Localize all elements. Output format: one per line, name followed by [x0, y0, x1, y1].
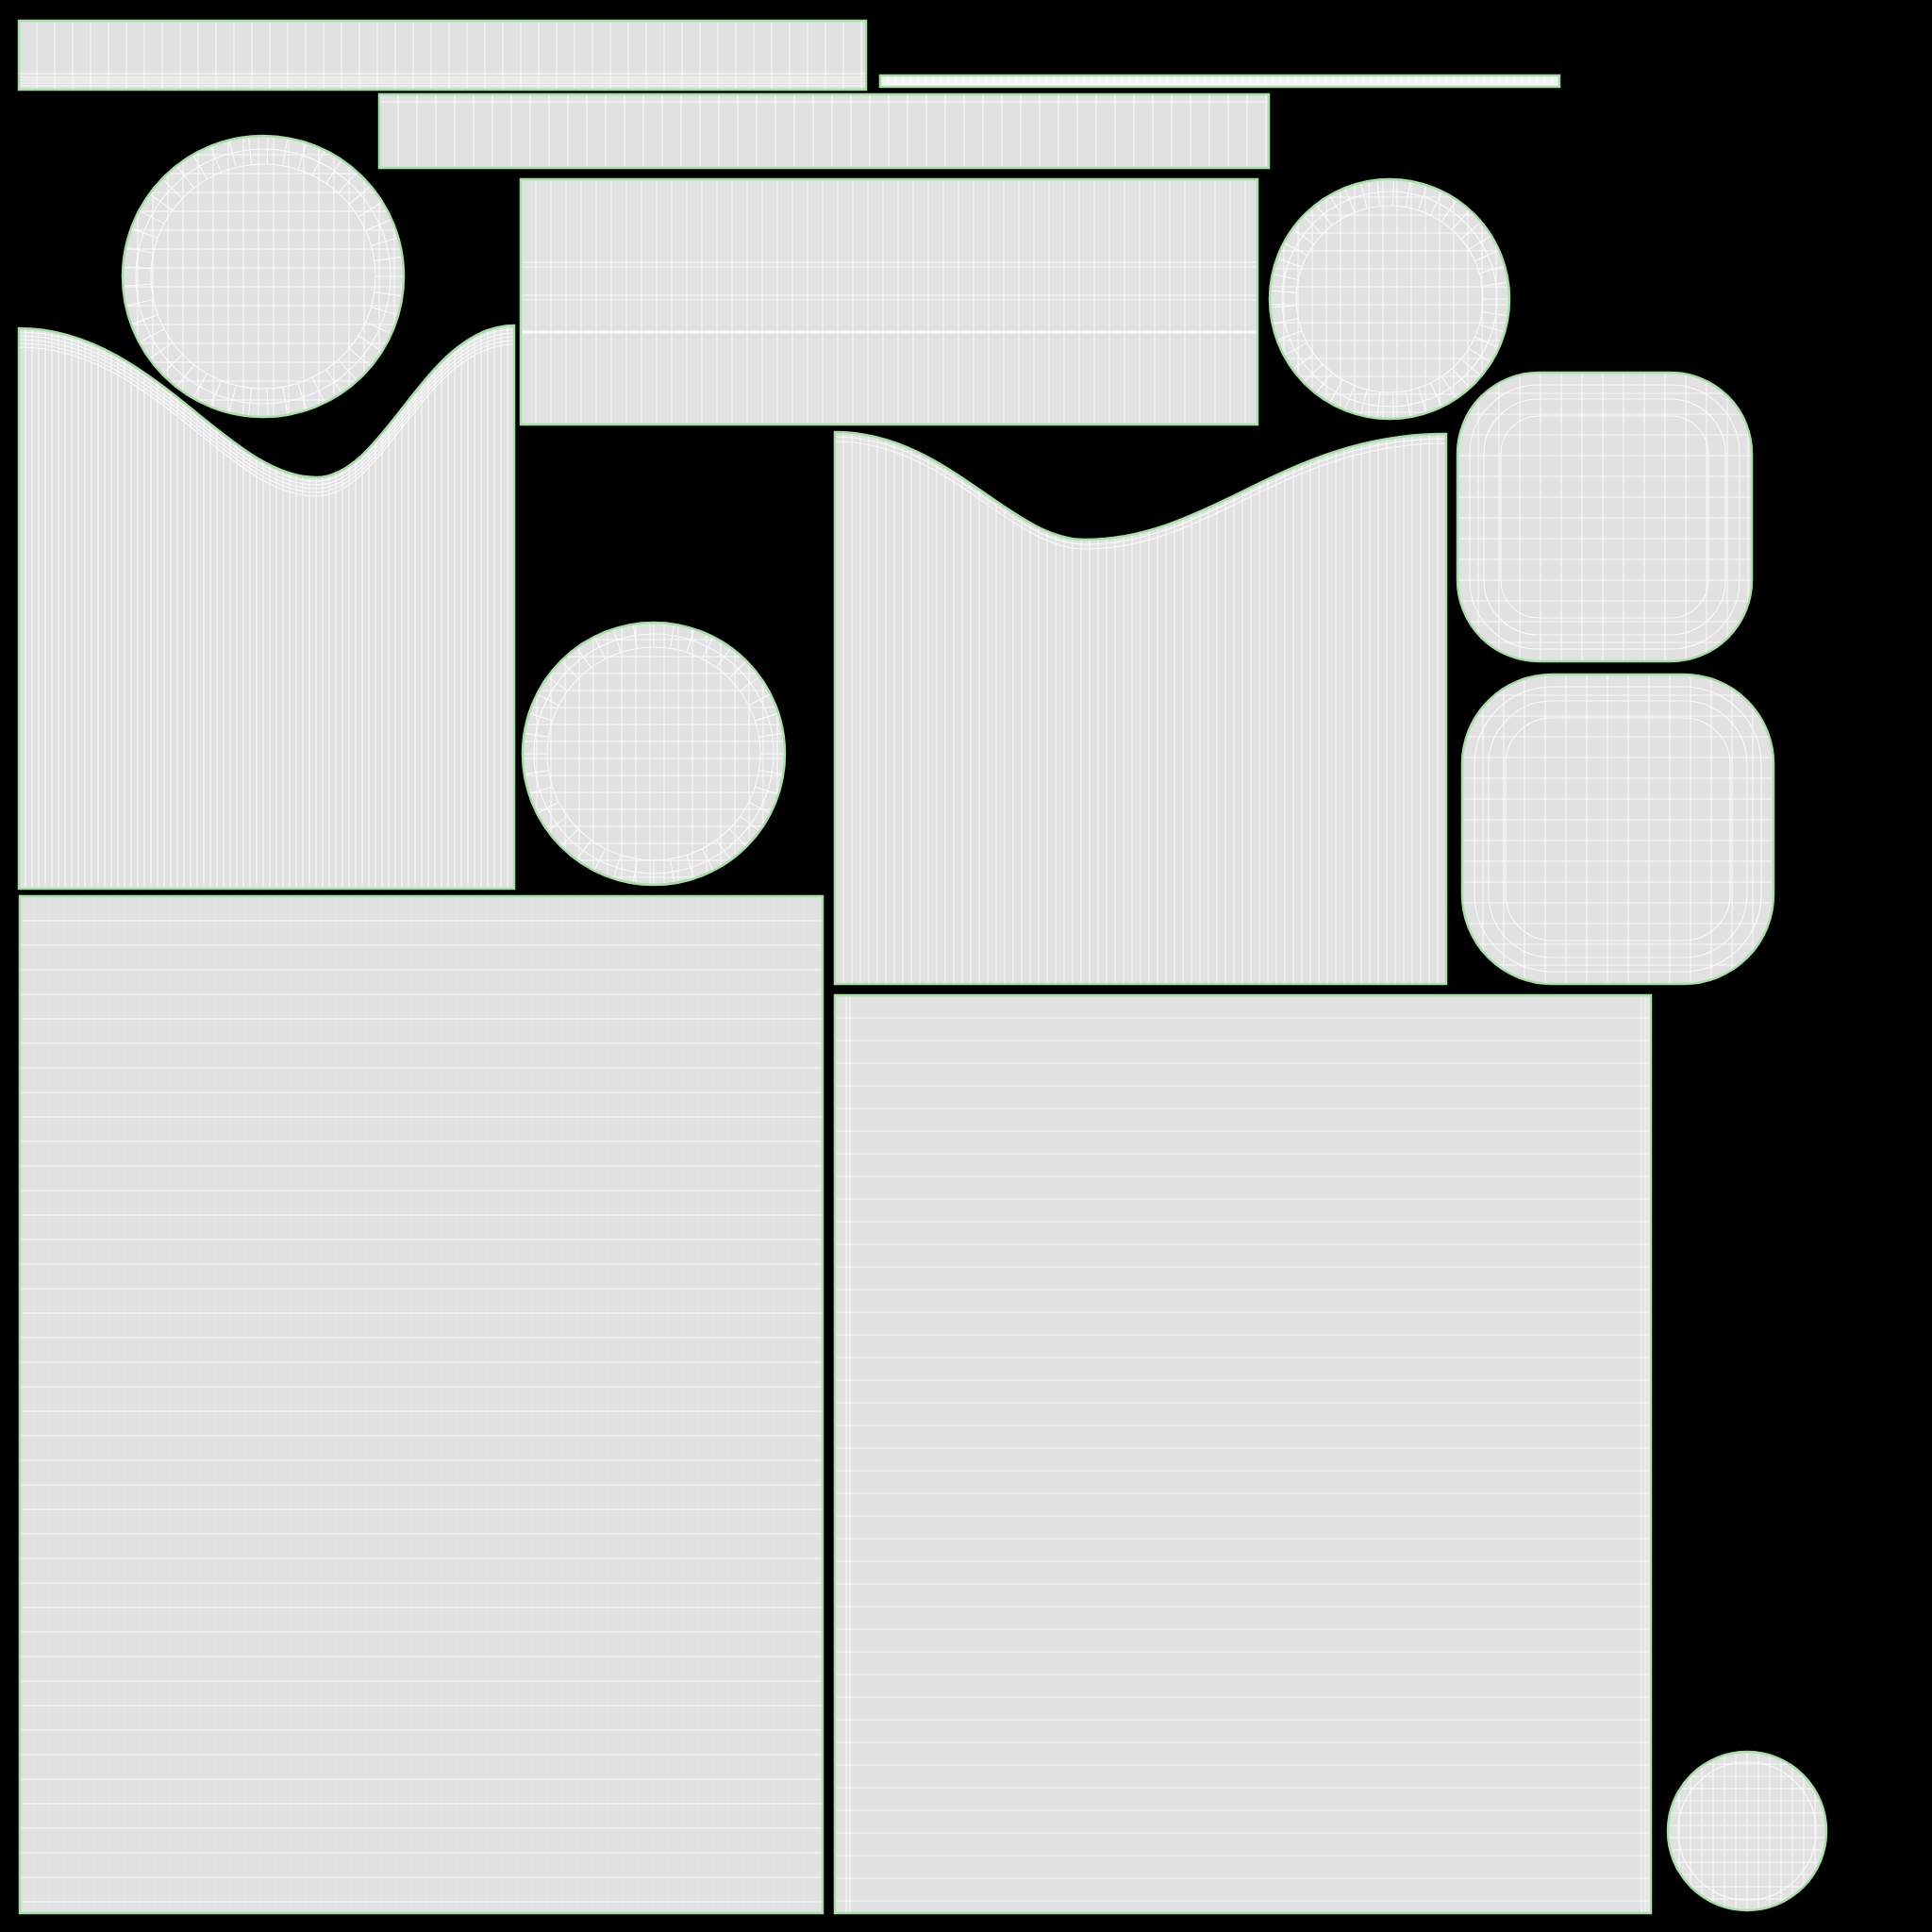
base-panel-right [835, 995, 1651, 1913]
seat-circle-mid [523, 623, 785, 885]
cushion-square-bottom [1462, 675, 1774, 984]
back-panel-right [835, 432, 1446, 984]
base-panel-left [20, 896, 823, 1913]
uv-wireframe-canvas [0, 0, 1932, 1932]
side-panel-rect [521, 179, 1257, 425]
strip-top-right-thin [880, 75, 1559, 87]
arm-circle-left [123, 136, 404, 417]
strip-top-left [19, 21, 866, 90]
uv-texture-sheet [0, 0, 1932, 1932]
arm-circle-right [1270, 179, 1509, 419]
strip-upper-long [379, 94, 1269, 168]
cushion-square-top [1457, 373, 1752, 661]
foot-circle-small [1668, 1752, 1826, 1910]
